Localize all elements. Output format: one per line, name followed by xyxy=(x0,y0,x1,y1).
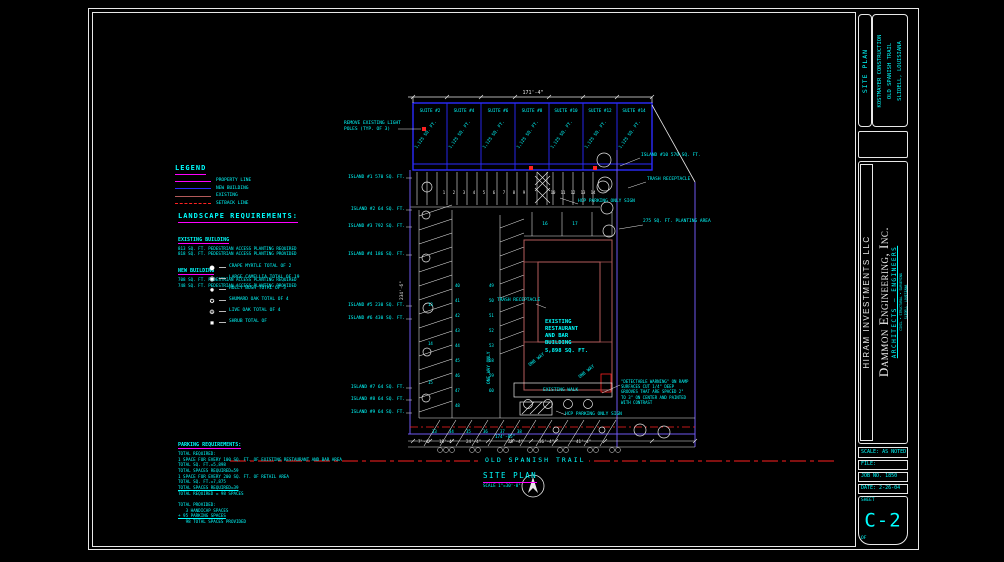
leader-dash xyxy=(219,289,226,290)
plan-label: 15 xyxy=(428,380,433,385)
shrub-symbols xyxy=(438,448,621,453)
plan-label: 6 xyxy=(493,190,495,195)
plan-label: 37 xyxy=(500,429,505,434)
legend-line-sample xyxy=(175,181,211,182)
revision-box xyxy=(858,131,908,158)
legend-line-sample xyxy=(175,188,211,189)
plan-label: 11 xyxy=(561,190,566,195)
plan-label: 59 xyxy=(489,373,494,378)
plan-label: SCALE 1"=30'-0" xyxy=(483,483,521,488)
plan-label: ISLAND #8 64 SQ. FT. xyxy=(351,397,405,403)
plant-label: LIVE OAK TOTAL OF 4 xyxy=(229,309,280,314)
plan-label: ISLAND #7 64 SQ. FT. xyxy=(351,385,405,391)
plan-label: EXISTING WALK xyxy=(543,388,578,394)
plan-label: 16 xyxy=(542,222,547,228)
leader-dash xyxy=(219,278,226,279)
plan-label: 24'-4" xyxy=(466,439,481,444)
parking-requirements: PARKING REQUIREMENTS: TOTAL REQUIRED:1 S… xyxy=(178,431,413,525)
plan-label: 18'-4" xyxy=(439,439,454,444)
plan-label: ONE WAY ONLY xyxy=(487,351,493,384)
legend-item: PROPERTY LINE xyxy=(175,178,295,186)
plant-legend-item: ●CRAPE MYRTLE TOTAL OF 2 xyxy=(206,262,376,273)
sheet-label: SHEET xyxy=(861,499,875,504)
plan-label: 34 xyxy=(449,429,454,434)
plant-symbol-icon: ● xyxy=(206,264,218,272)
parking-line: 98 TOTAL SPACES PROVIDED xyxy=(178,519,413,525)
plan-label: HCP PARKING ONLY SIGN xyxy=(565,412,622,418)
plan-label: 41'-4" xyxy=(576,439,591,444)
plan-label: 13 xyxy=(581,190,586,195)
plant-label: CRAPE MYRTLE TOTAL OF 2 xyxy=(229,265,291,270)
plan-label: 14 xyxy=(428,341,433,346)
plan-label: 3 xyxy=(463,190,465,195)
leader-dash xyxy=(219,311,226,312)
plan-label: ISLAND #4 186 SQ. FT. xyxy=(348,252,405,258)
plan-label: ISLAND #10 570 SQ. FT. xyxy=(641,153,701,159)
center-building-outline xyxy=(524,240,612,392)
plant-symbol-icon: ✹ xyxy=(206,286,218,294)
plan-label: SITE PLAN xyxy=(483,471,537,483)
plan-label: 50 xyxy=(489,298,494,303)
drawing-canvas: LEGEND PROPERTY LINENEW BUILDINGEXISTING… xyxy=(0,0,1004,562)
suite-number-label: SUITE #4 xyxy=(454,109,475,115)
plan-label: 8 xyxy=(513,190,515,195)
plan-label: ISLAND #1 570 SQ. FT. xyxy=(348,175,405,181)
landscape-title: LANDSCAPE REQUIREMENTS: xyxy=(178,213,298,223)
plan-label: 49 xyxy=(489,283,494,288)
sheet-number: C-2 xyxy=(864,512,901,531)
plan-label: 234'-6" xyxy=(400,281,406,300)
plan-label: 1 xyxy=(443,190,445,195)
firm-subtitle-rotated: ARCHITECTS — ENGINEERS xyxy=(891,166,899,438)
owner-name-rotated: HIRAM INVESTMENTS LLC xyxy=(861,166,872,438)
plant-label: LARGE CAMELLIA TOTAL OF 19 xyxy=(229,276,299,281)
plan-label: 53 xyxy=(489,343,494,348)
suite-number-label: SUITE #6 xyxy=(488,109,509,115)
firm-address-rotated: CIVIL • STRUCTURAL • SURVEYING SLIDELL, … xyxy=(899,166,908,438)
plan-label: 45 xyxy=(455,358,460,363)
plant-label: HOLLY BUSH TOTAL OF 3 xyxy=(229,287,286,292)
plan-label: 7'-4" xyxy=(418,439,431,444)
plant-symbol-icon: ▪ xyxy=(206,319,218,327)
plan-label: 40 xyxy=(455,283,460,288)
file-value: FILE: xyxy=(861,462,876,467)
plant-symbol-icon: ✪ xyxy=(206,297,218,305)
plan-label: 52 xyxy=(489,328,494,333)
suite-number-label: SUITE #14 xyxy=(622,109,645,115)
plan-label: HCP PARKING ONLY SIGN xyxy=(578,199,635,205)
date-value: DATE: 2-26-04 xyxy=(861,486,900,491)
plan-label: EXISTING RESTAURANT AND BAR BUILDING 5,8… xyxy=(545,319,588,355)
suite-number-label: SUITE #8 xyxy=(522,109,543,115)
leader-dash xyxy=(219,300,226,301)
of-label: OF xyxy=(861,537,866,542)
legend-line-sample xyxy=(175,196,211,197)
plan-label: 42 xyxy=(455,313,460,318)
plan-label: 44 xyxy=(455,343,460,348)
plan-label: 13 xyxy=(428,302,433,307)
plan-label: 38 xyxy=(517,429,522,434)
plan-label: 25'-4" xyxy=(508,439,523,444)
plan-label: 35 xyxy=(466,429,471,434)
plan-label: 47 xyxy=(455,388,460,393)
plant-label: SHRUB TOTAL OF xyxy=(229,320,267,325)
legend-title: LEGEND xyxy=(175,165,206,175)
plan-label: ISLAND #9 64 SQ. FT. xyxy=(351,410,405,416)
plan-label: 51 xyxy=(489,313,494,318)
plan-label: ISLAND #2 64 SQ. FT. xyxy=(351,207,405,213)
plan-label: TRASH RECEPTACLE xyxy=(647,177,690,183)
legend-item-label: NEW BUILDING xyxy=(216,187,249,192)
parking-heading: PARKING REQUIREMENTS: xyxy=(178,442,241,449)
section-heading: EXISTING BUILDING xyxy=(178,237,229,244)
job-number: JOB NO. 1850 xyxy=(861,474,897,479)
plan-label: 14 xyxy=(591,190,596,195)
plan-label: 41 xyxy=(455,298,460,303)
plan-label: 17 xyxy=(572,222,577,228)
plan-label: 12 xyxy=(571,190,576,195)
suite-number-label: SUITE #12 xyxy=(588,109,611,115)
plan-label: 60 xyxy=(489,388,494,393)
suite-number-label: SUITE #2 xyxy=(420,109,441,115)
leader-lines xyxy=(398,129,646,415)
suite-number-label: SUITE #10 xyxy=(554,109,577,115)
plan-label: 4 xyxy=(473,190,475,195)
legend-item-label: EXISTING xyxy=(216,194,238,199)
plan-label: OLD SPANISH TRAIL xyxy=(482,456,589,464)
sheet-title-rotated: SITE PLAN xyxy=(860,18,871,124)
plan-label: 43 xyxy=(455,328,460,333)
plan-label: 36 xyxy=(483,429,488,434)
plan-label: ISLAND #3 792 SQ. FT. xyxy=(348,224,405,230)
plant-symbol-icon: ❂ xyxy=(206,308,218,316)
plan-label: 7 xyxy=(503,190,505,195)
scale-value: SCALE: AS NOTED xyxy=(861,450,906,455)
plan-label: 5 xyxy=(483,190,485,195)
leader-dash xyxy=(219,267,226,268)
plan-label: ISLAND #5 230 SQ. FT. xyxy=(348,303,405,309)
legend-item: EXISTING xyxy=(175,193,295,201)
plan-label: 10 xyxy=(551,190,556,195)
plan-label: 33 xyxy=(432,429,437,434)
leader-dash xyxy=(219,322,226,323)
plant-symbol-icon: ◉ xyxy=(206,275,218,283)
plan-label: TRASH RECEPTACLE xyxy=(497,298,540,304)
plan-label: 9 xyxy=(523,190,525,195)
plan-label: 2 xyxy=(453,190,455,195)
plant-label: SHUMARD OAK TOTAL OF 4 xyxy=(229,298,289,303)
plan-label: 48 xyxy=(455,403,460,408)
plan-label: 171'-4" xyxy=(522,90,543,97)
plan-label: 36'-4" xyxy=(539,439,554,444)
plan-label: 46 xyxy=(455,373,460,378)
plant-legend-item: ✹HOLLY BUSH TOTAL OF 3 xyxy=(206,284,376,295)
plan-label: "DETECTABLE WARNING" ON RAMP SURFACES CU… xyxy=(621,379,688,405)
legend-item: NEW BUILDING xyxy=(175,185,295,193)
plan-label: ISLAND #6 430 SQ. FT. xyxy=(348,316,405,322)
project-name-rotated: KOSTMAYER CONSTRUCTION OLD SPANISH TRAIL… xyxy=(875,18,907,124)
firm-name-rotated: Dammon Engineering, Inc. xyxy=(874,166,892,438)
legend-item-label: PROPERTY LINE xyxy=(216,179,251,184)
plan-label: 58 xyxy=(489,358,494,363)
legend: LEGEND PROPERTY LINENEW BUILDINGEXISTING… xyxy=(175,155,295,208)
plant-legend-item: ◉LARGE CAMELLIA TOTAL OF 19 xyxy=(206,273,376,284)
plan-label: REMOVE EXISTING LIGHT POLES (TYP. OF 3) xyxy=(344,121,401,133)
plan-label: 275 SQ. FT. PLANTING AREA xyxy=(643,219,711,225)
